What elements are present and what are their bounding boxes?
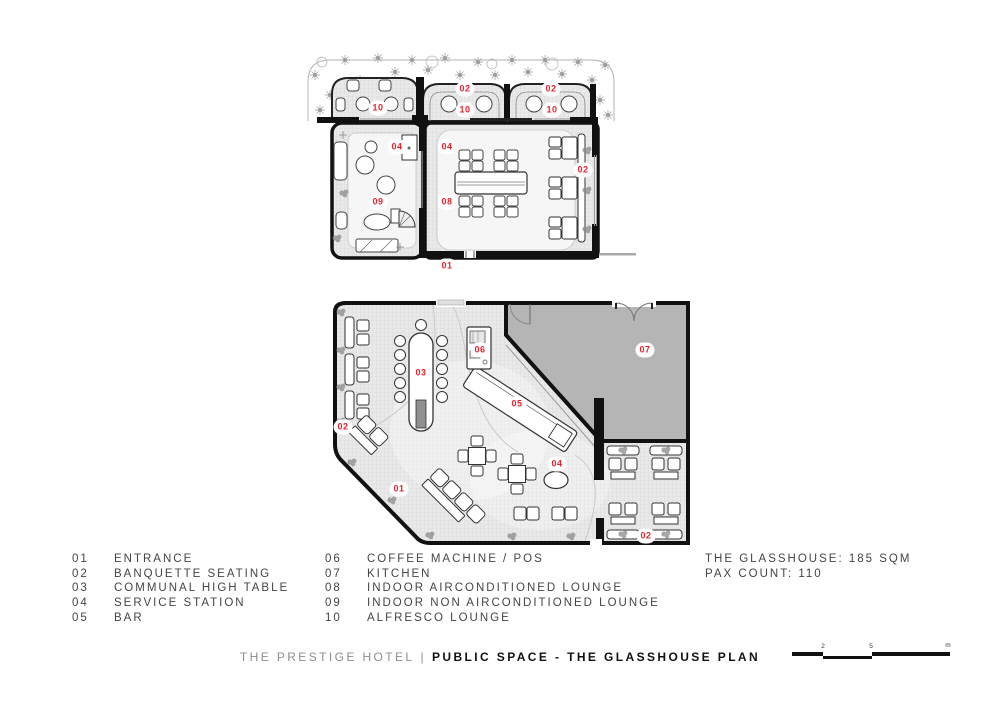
legend-num: 05: [72, 612, 114, 624]
legend-num: 08: [325, 582, 367, 594]
legend-label: SERVICE STATION: [114, 597, 246, 609]
upper-entrance-wall: [425, 251, 636, 258]
legend-label: INDOOR NON AIRCONDITIONED LOUNGE: [367, 597, 660, 609]
legend-label: ALFRESCO LOUNGE: [367, 612, 511, 624]
marker-banquette-lower-left: 02: [333, 420, 352, 435]
legend-num: 03: [72, 582, 114, 594]
legend-row: 05BAR: [72, 610, 289, 625]
summary-area: THE GLASSHOUSE: 185 SQM: [705, 552, 911, 567]
marker-banquette-lower-right: 02: [636, 529, 655, 544]
scale-segment-1: [792, 652, 823, 656]
marker-ac-lounge: 08: [437, 195, 456, 210]
marker-entrance-upper: 01: [437, 259, 456, 274]
legend-row: 10ALFRESCO LOUNGE: [325, 610, 660, 625]
legend-row: 07KITCHEN: [325, 567, 660, 582]
scale-unit-m: m: [945, 642, 950, 649]
legend-column-right: 06COFFEE MACHINE / POS 07KITCHEN 08INDOO…: [325, 552, 660, 625]
marker-entrance-lower: 01: [389, 482, 408, 497]
legend-label: KITCHEN: [367, 568, 431, 580]
legend-num: 07: [325, 568, 367, 580]
legend-num: 01: [72, 553, 114, 565]
legend-num: 10: [325, 612, 367, 624]
scale-tick-5: 5: [869, 643, 873, 650]
legend-row: 04SERVICE STATION: [72, 596, 289, 611]
legend-row: 01ENTRANCE: [72, 552, 289, 567]
marker-service-station-c: 04: [547, 457, 566, 472]
legend-row: 08INDOOR AIRCONDITIONED LOUNGE: [325, 581, 660, 596]
legend-num: 06: [325, 553, 367, 565]
plan-title: PUBLIC SPACE - THE GLASSHOUSE PLAN: [432, 650, 760, 664]
legend-num: 02: [72, 568, 114, 580]
legend-num: 04: [72, 597, 114, 609]
legend-row: 06COFFEE MACHINE / POS: [325, 552, 660, 567]
legend-label: BAR: [114, 612, 144, 624]
marker-bar: 05: [507, 397, 526, 412]
summary-block: THE GLASSHOUSE: 185 SQM PAX COUNT: 110: [705, 552, 911, 581]
marker-alfresco-3: 10: [542, 103, 561, 118]
legend-num: 09: [325, 597, 367, 609]
legend-label: INDOOR AIRCONDITIONED LOUNGE: [367, 582, 623, 594]
summary-pax: PAX COUNT: 110: [705, 567, 911, 582]
legend-label: BANQUETTE SEATING: [114, 568, 271, 580]
marker-service-station-a: 04: [387, 140, 406, 155]
lower-plan: [335, 299, 688, 547]
marker-kitchen: 07: [635, 343, 654, 358]
marker-banquette-upper-right: 02: [573, 163, 592, 178]
scale-segment-2: [823, 656, 872, 660]
hotel-name: THE PRESTIGE HOTEL: [240, 650, 415, 664]
marker-alfresco-1: 10: [368, 101, 387, 116]
legend-row: 09INDOOR NON AIRCONDITIONED LOUNGE: [325, 596, 660, 611]
marker-alfresco-2: 10: [455, 103, 474, 118]
title-separator: |: [420, 650, 426, 664]
marker-communal-table: 03: [411, 366, 430, 381]
service-station-oval: [544, 472, 568, 489]
legend-label: COMMUNAL HIGH TABLE: [114, 582, 289, 594]
legend-label: ENTRANCE: [114, 553, 193, 565]
scale-segment-3: [872, 652, 950, 656]
scale-tick-2: 2: [821, 643, 825, 650]
marker-non-ac-lounge: 09: [368, 195, 387, 210]
marker-coffee-pos: 06: [470, 343, 489, 358]
marker-banquette-bay2: 02: [455, 82, 474, 97]
sheet: 10 02 10 02 10 04 04 09 08 02 01 06 03 0…: [0, 0, 1000, 707]
legend-row: 03COMMUNAL HIGH TABLE: [72, 581, 289, 596]
legend-column-left: 01ENTRANCE 02BANQUETTE SEATING 03COMMUNA…: [72, 552, 289, 625]
marker-service-station-b: 04: [437, 140, 456, 155]
marker-banquette-bay3: 02: [541, 82, 560, 97]
legend-label: COFFEE MACHINE / POS: [367, 553, 544, 565]
legend-row: 02BANQUETTE SEATING: [72, 567, 289, 582]
